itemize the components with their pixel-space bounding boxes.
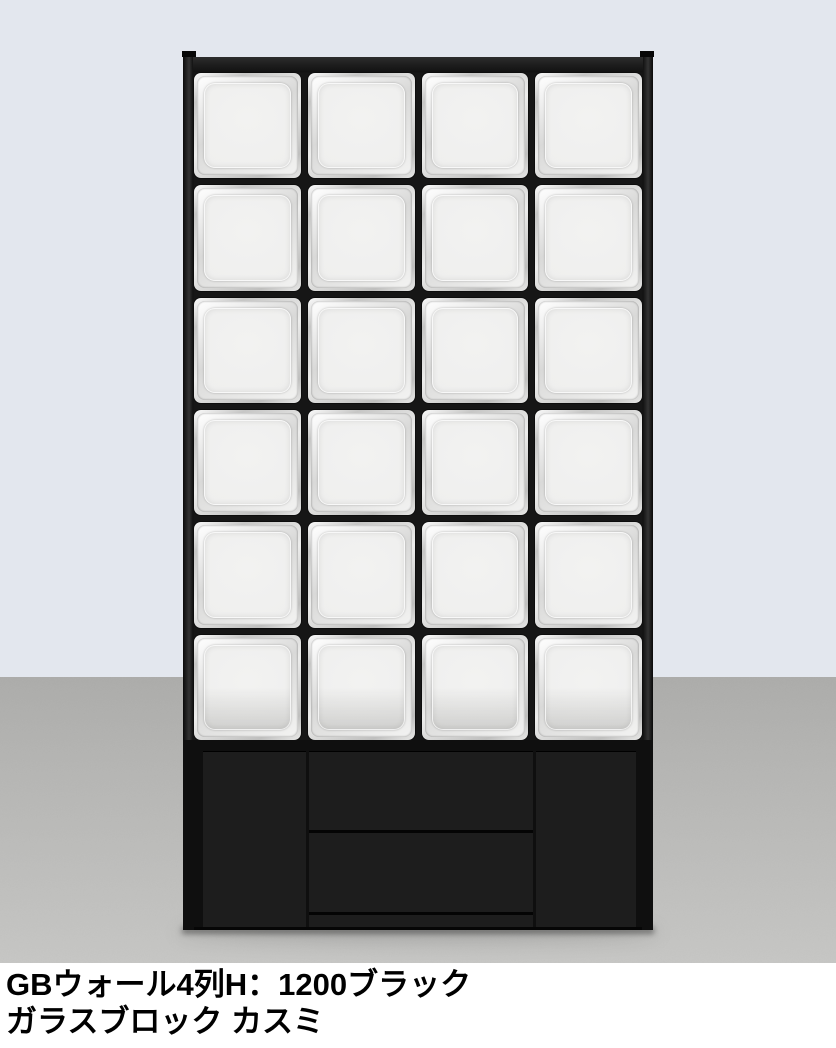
base-seam-upper — [309, 830, 533, 833]
base-subpanel-left — [203, 751, 306, 927]
glass-block — [194, 298, 301, 403]
glass-block — [535, 635, 642, 740]
glass-block — [194, 185, 301, 290]
frame-top-rail — [193, 57, 643, 73]
base-seam-lower — [309, 912, 533, 915]
base-subpanel-right — [536, 751, 636, 927]
glass-block — [422, 73, 529, 178]
glass-block — [535, 73, 642, 178]
glass-block — [308, 635, 415, 740]
glass-block-grid — [194, 73, 642, 740]
glass-block — [422, 410, 529, 515]
glass-block — [422, 185, 529, 290]
glass-block-wall-unit — [183, 51, 653, 930]
product-caption: GBウォール4列H：1200ブラック ガラスブロック カスミ — [0, 963, 836, 1048]
glass-block — [308, 410, 415, 515]
glass-block — [535, 522, 642, 627]
product-photo-scene — [0, 0, 836, 963]
glass-block — [194, 410, 301, 515]
glass-block — [535, 298, 642, 403]
glass-block — [308, 185, 415, 290]
glass-block — [422, 522, 529, 627]
glass-block — [308, 522, 415, 627]
glass-block — [308, 298, 415, 403]
glass-block — [422, 298, 529, 403]
base-panel — [183, 740, 653, 930]
glass-block — [308, 73, 415, 178]
base-subpanel-middle — [309, 751, 533, 927]
product-name-line2: ガラスブロック カスミ — [6, 1003, 836, 1040]
product-name-line1: GBウォール4列H：1200ブラック — [6, 966, 836, 1003]
base-bottom-edge — [194, 927, 642, 930]
glass-block — [535, 185, 642, 290]
glass-block — [194, 73, 301, 178]
glass-block — [422, 635, 529, 740]
glass-block — [194, 522, 301, 627]
glass-block — [535, 410, 642, 515]
glass-block — [194, 635, 301, 740]
